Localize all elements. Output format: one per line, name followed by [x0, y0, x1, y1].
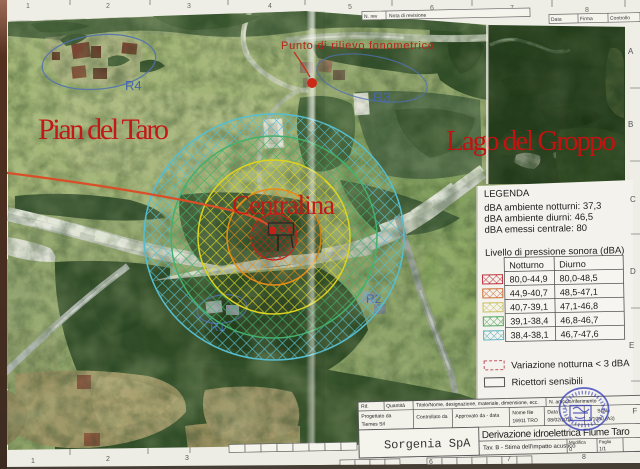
- svg-text:Controllato da: Controllato da: [416, 414, 447, 421]
- svg-text:Centralina: Centralina: [232, 190, 335, 220]
- svg-text:38,4-38,1: 38,4-38,1: [511, 330, 549, 341]
- svg-text:2: 2: [106, 3, 110, 10]
- svg-text:Controllo: Controllo: [610, 15, 630, 21]
- svg-text:Pian del Taro: Pian del Taro: [38, 113, 169, 146]
- svg-text:5: 5: [348, 4, 352, 11]
- svg-text:40,7-39,1: 40,7-39,1: [510, 302, 548, 313]
- svg-text:Nome file: Nome file: [512, 410, 533, 417]
- svg-text:4: 4: [268, 3, 272, 10]
- svg-text:Notturno: Notturno: [509, 260, 544, 271]
- svg-text:2: 2: [106, 456, 110, 463]
- svg-text:Rif.: Rif.: [361, 404, 369, 410]
- svg-text:47,1-46,8: 47,1-46,8: [560, 301, 598, 312]
- svg-text:80,0-44,9: 80,0-44,9: [509, 274, 547, 285]
- svg-text:3: 3: [185, 455, 189, 462]
- svg-text:8: 8: [585, 7, 589, 14]
- svg-text:39,1-38,4: 39,1-38,4: [510, 316, 548, 327]
- svg-text:1/1: 1/1: [599, 446, 606, 452]
- svg-text:46,7-47,6: 46,7-47,6: [561, 329, 599, 340]
- svg-text:Lago del Groppo: Lago del Groppo: [446, 125, 616, 157]
- svg-text:Quantità: Quantità: [386, 403, 405, 409]
- svg-text:Sorgenia SpA: Sorgenia SpA: [384, 436, 472, 452]
- svg-text:48,5-47,1: 48,5-47,1: [560, 287, 598, 298]
- svg-text:46,8-46,7: 46,8-46,7: [560, 315, 598, 326]
- svg-text:Data: Data: [547, 409, 558, 415]
- svg-text:1: 1: [26, 3, 30, 10]
- svg-text:Approvato da - data: Approvato da - data: [455, 413, 499, 420]
- svg-text:Progettato da: Progettato da: [361, 413, 391, 420]
- svg-text:A: A: [628, 47, 634, 56]
- svg-text:Tiemes Srl: Tiemes Srl: [361, 421, 385, 428]
- svg-text:LEGENDA: LEGENDA: [484, 188, 530, 200]
- svg-text:C: C: [630, 195, 636, 204]
- svg-text:dBA emessi centrale: 80: dBA emessi centrale: 80: [484, 223, 587, 236]
- svg-text:3: 3: [187, 3, 191, 10]
- svg-text:7: 7: [507, 456, 511, 463]
- svg-text:Punto di rilievo fonometrico: Punto di rilievo fonometrico: [281, 40, 434, 52]
- svg-text:8: 8: [582, 454, 586, 461]
- svg-text:0: 0: [569, 447, 572, 453]
- svg-text:E: E: [629, 341, 634, 350]
- svg-text:80,0-48,5: 80,0-48,5: [559, 273, 597, 284]
- svg-text:16911 TRO: 16911 TRO: [512, 418, 538, 425]
- svg-text:N. articolo/riferimento: N. articolo/riferimento: [549, 398, 597, 405]
- svg-text:Variazione notturna < 3 dBA: Variazione notturna < 3 dBA: [511, 358, 630, 371]
- svg-text:Modifica: Modifica: [569, 440, 586, 445]
- svg-text:1: 1: [31, 458, 35, 465]
- svg-text:Diurno: Diurno: [559, 259, 586, 270]
- svg-text:44,9-40,7: 44,9-40,7: [510, 288, 548, 299]
- svg-text:D: D: [630, 267, 636, 276]
- svg-text:Ricettori sensibili: Ricettori sensibili: [511, 376, 582, 388]
- svg-text:N. rev: N. rev: [364, 14, 378, 20]
- svg-text:B: B: [628, 120, 633, 129]
- svg-text:Nota di revisione: Nota di revisione: [389, 13, 427, 20]
- svg-text:F: F: [632, 406, 637, 415]
- svg-text:Data: Data: [551, 17, 562, 23]
- svg-text:Foglio: Foglio: [599, 439, 612, 444]
- svg-text:1/1000 (A3): 1/1000 (A3): [588, 416, 615, 423]
- svg-text:Firma: Firma: [580, 16, 593, 22]
